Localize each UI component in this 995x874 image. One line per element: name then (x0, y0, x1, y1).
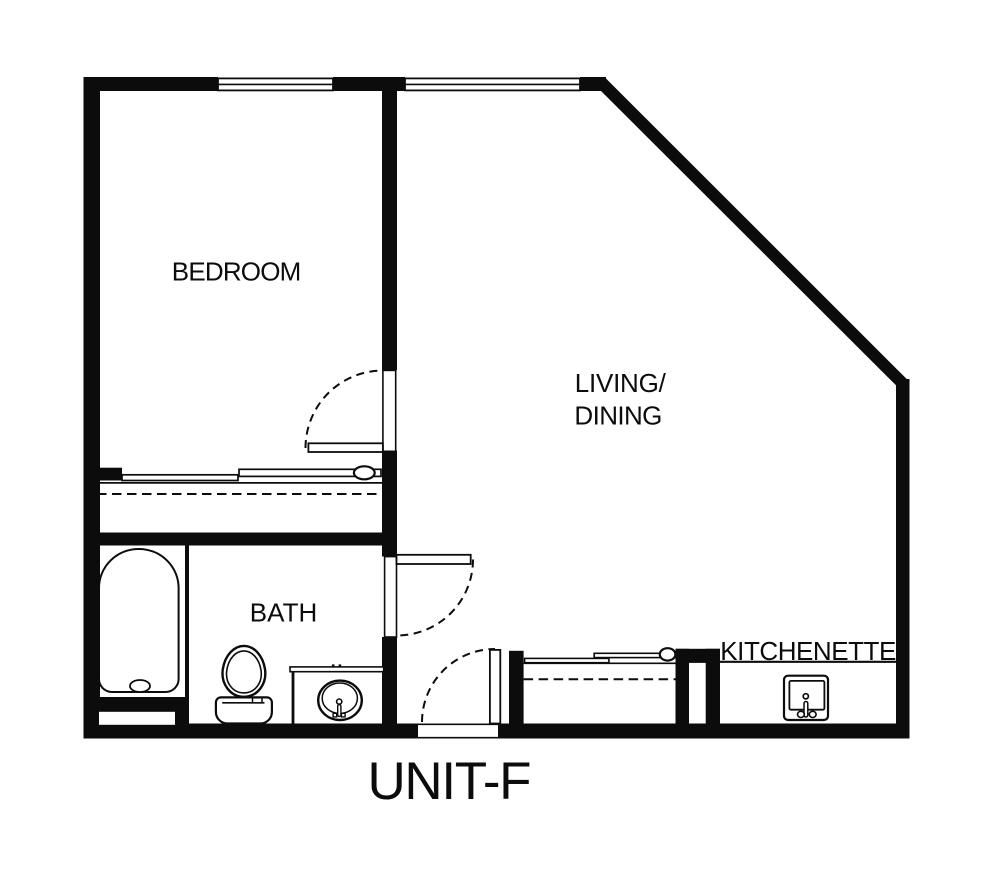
svg-text:BATH: BATH (250, 598, 317, 628)
svg-text:KITCHENETTE: KITCHENETTE (720, 636, 896, 666)
svg-text:UNIT-F: UNIT-F (368, 752, 532, 811)
svg-text:DINING: DINING (574, 400, 662, 430)
svg-text:BEDROOM: BEDROOM (172, 257, 301, 287)
svg-text:LIVING/: LIVING/ (575, 368, 667, 398)
